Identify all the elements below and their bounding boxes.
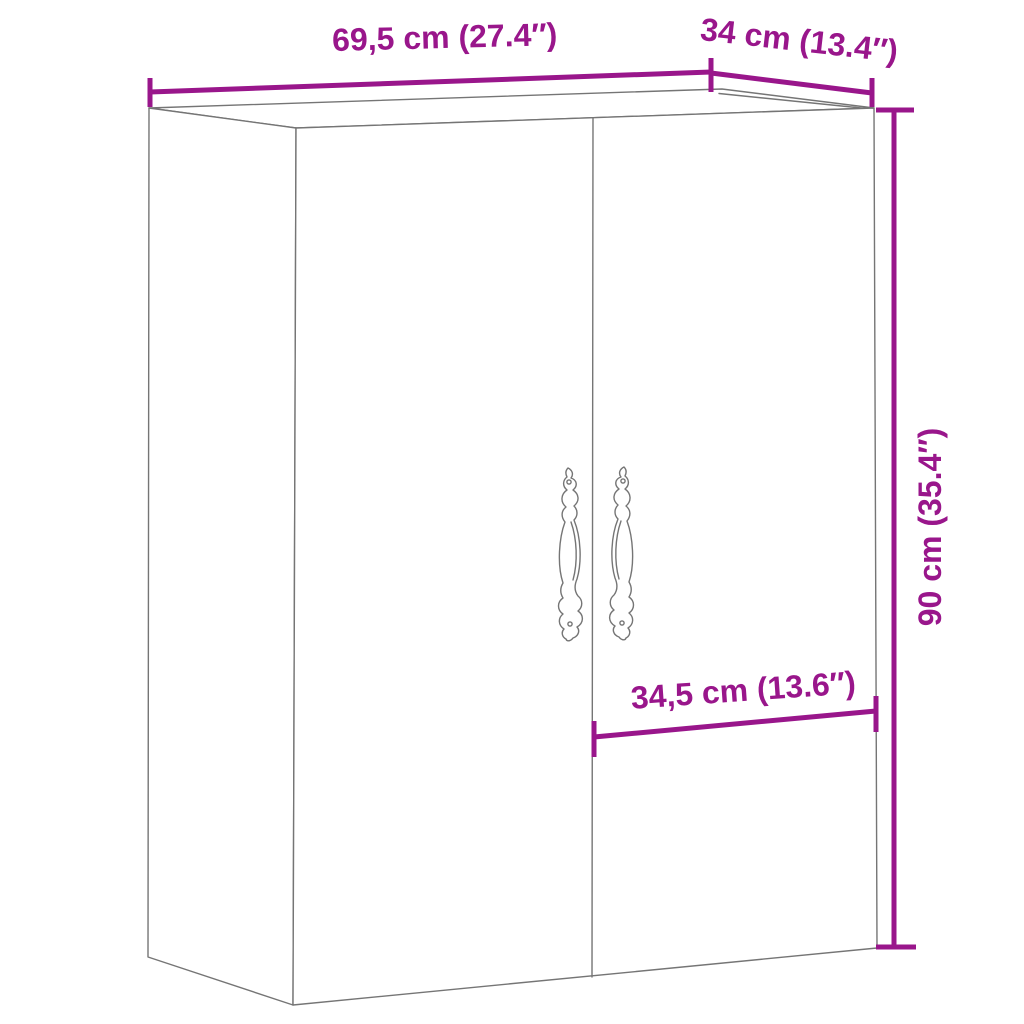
cabinet-side-panel (148, 108, 296, 1005)
cabinet-dimension-diagram: 69,5 cm (27.4″) 34 cm (13.4″) 90 cm (35.… (0, 0, 1024, 1024)
cabinet-drawing (148, 89, 877, 1005)
height-dimension-label: 90 cm (35.4″) (912, 428, 948, 627)
door-divider-line (592, 118, 593, 977)
cabinet-front-face (293, 108, 877, 1005)
width-dimension-label: 69,5 cm (27.4″) (332, 16, 558, 58)
